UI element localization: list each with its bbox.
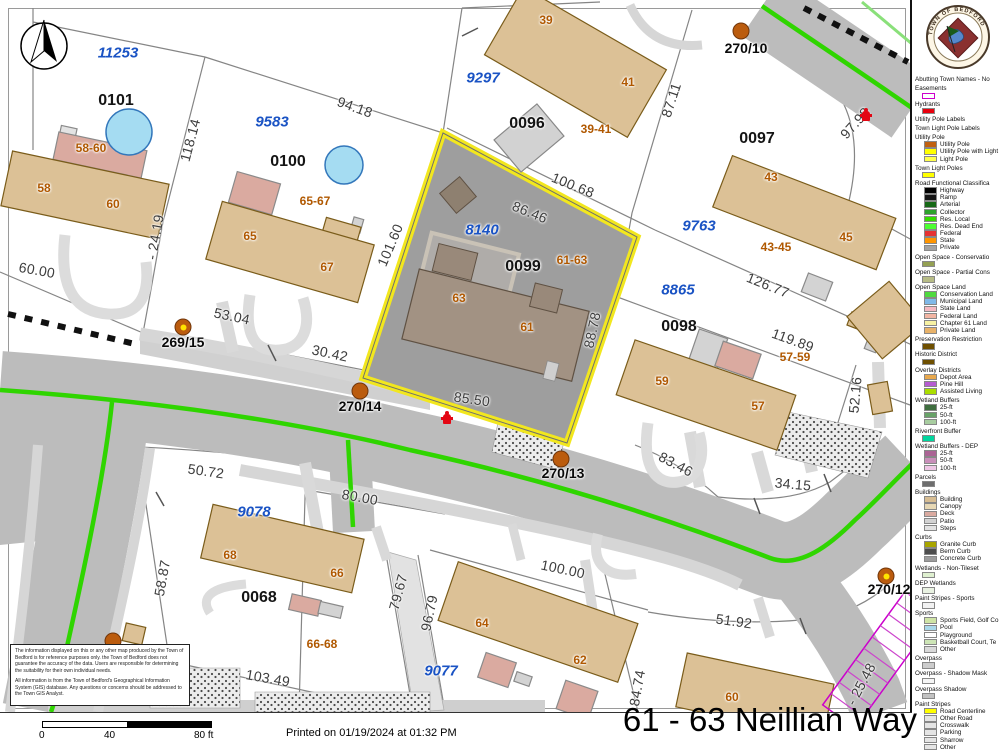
legend-item-label: 50-ft [940, 412, 953, 419]
legend-item-label: Basketball Court, Te [940, 639, 996, 646]
legend-swatch [924, 291, 937, 298]
legend-section: Overpass Shadow [915, 686, 1000, 699]
legend-swatch-row [915, 602, 1000, 608]
legend-item: Chapter 61 Land [915, 320, 1000, 327]
legend-section-heading: Easements [915, 85, 1000, 92]
disclaimer-paragraph-2: All information is from the Town of Bedf… [15, 678, 185, 698]
legend-section-heading: Overpass Shadow [915, 686, 1000, 693]
legend-item-label: Pool [940, 624, 953, 631]
legend-item-label: Depot Area [940, 374, 972, 381]
legend-swatch [924, 419, 937, 426]
legend-item: Deck [915, 510, 1000, 517]
legend-item: 100-ft [915, 465, 1000, 472]
legend-swatch-row [915, 587, 1000, 593]
legend-item-label: Playground [940, 632, 972, 639]
legend-section: Abutting Town Names - No [915, 76, 1000, 83]
legend-item-label: Building [940, 496, 962, 503]
legend-swatch [924, 209, 937, 216]
legend-item: Utility Pole with Light [915, 148, 1000, 155]
legend-item: Private [915, 244, 1000, 251]
scale-tick-40: 40 [104, 730, 115, 741]
legend-swatch [922, 587, 935, 594]
legend-item: Parking [915, 729, 1000, 736]
legend-swatch [924, 230, 937, 237]
legend-swatch [924, 548, 937, 555]
legend-section-heading: Open Space - Conservatio [915, 254, 1000, 261]
legend-swatch [924, 503, 937, 510]
legend-swatch-row [915, 261, 1000, 267]
legend-entries: Abutting Town Names - NoEasementsHydrant… [915, 76, 1000, 750]
legend-item: Highway [915, 187, 1000, 194]
legend-item-label: State [940, 237, 955, 244]
legend-item: 25-ft [915, 404, 1000, 411]
pools [106, 109, 363, 184]
legend-item: Federal [915, 230, 1000, 237]
legend-section-heading: Preservation Restriction [915, 336, 1000, 343]
printed-timestamp: Printed on 01/19/2024 at 01:32 PM [286, 727, 457, 739]
legend-swatch [924, 141, 937, 148]
legend-swatch [924, 737, 937, 744]
legend-item: Sharrow [915, 737, 1000, 744]
legend-swatch [924, 313, 937, 320]
legend-item: 50-ft [915, 457, 1000, 464]
legend-swatch-row [915, 662, 1000, 668]
legend-item-label: 50-ft [940, 457, 953, 464]
disclaimer-box: The information displayed on this or any… [10, 644, 190, 706]
legend-swatch [922, 261, 935, 268]
legend-item: Collector [915, 209, 1000, 216]
legend-swatch [924, 245, 937, 252]
legend-swatch [922, 572, 935, 579]
legend-item: Canopy [915, 503, 1000, 510]
legend-section-heading: Open Space - Partial Cons [915, 269, 1000, 276]
legend-swatch-row [915, 435, 1000, 441]
legend-item: Berm Curb [915, 548, 1000, 555]
legend-swatch [924, 223, 937, 230]
legend-section: Paint StripesRoad CenterlineOther RoadCr… [915, 701, 1000, 750]
legend-swatch [924, 617, 937, 624]
disclaimer-paragraph-1: The information displayed on this or any… [15, 648, 185, 674]
legend-section-heading: Abutting Town Names - No [915, 76, 1000, 83]
legend-section-heading: Overpass - Shadow Mask [915, 670, 1000, 677]
legend-section: Wetlands - Non-Tileset [915, 565, 1000, 578]
legend-item: Ramp [915, 194, 1000, 201]
legend-section: Easements [915, 85, 1000, 98]
legend-swatch [924, 201, 937, 208]
legend-swatch [924, 374, 937, 381]
legend-item: Other Road [915, 715, 1000, 722]
legend-swatch [924, 625, 937, 632]
legend-section-heading: Wetland Buffers [915, 397, 1000, 404]
scale-bar: 0 40 80 ft [42, 721, 212, 742]
pool-0101 [106, 109, 152, 155]
legend-swatch [924, 541, 937, 548]
legend-item-label: Ramp [940, 194, 957, 201]
legend-section: Open Space LandConservation LandMunicipa… [915, 284, 1000, 334]
legend-section: CurbsGranite CurbBerm CurbConcrete Curb [915, 534, 1000, 563]
legend-swatch [922, 359, 935, 366]
legend-section: Utility PoleUtility PoleUtility Pole wit… [915, 134, 1000, 163]
legend-item-label: Municipal Land [940, 298, 982, 305]
legend-panel: TOWN OF BEDFORD Abutting Town Names - No… [912, 0, 1000, 750]
legend-swatch [924, 388, 937, 395]
legend-section-heading: Sports [915, 610, 1000, 617]
legend-item-label: Other [940, 646, 956, 653]
legend-swatch-row [915, 108, 1000, 114]
legend-section: Wetland Buffers - DEP25-ft50-ft100-ft [915, 443, 1000, 472]
legend-swatch [922, 602, 935, 609]
legend-swatch [924, 729, 937, 736]
legend-item: Patio [915, 518, 1000, 525]
legend-swatch [924, 457, 937, 464]
legend-item: Res. Dead End [915, 223, 1000, 230]
legend-swatch [924, 715, 937, 722]
legend-swatch [924, 632, 937, 639]
legend-item-label: 100-ft [940, 419, 956, 426]
legend-section-heading: Town Light Poles [915, 165, 1000, 172]
legend-item-label: Concrete Curb [940, 555, 981, 562]
legend-item-label: Conservation Land [940, 291, 993, 298]
legend-item-label: Road Centerline [940, 708, 986, 715]
legend-item-label: Private [940, 244, 960, 251]
legend-item: Steps [915, 525, 1000, 532]
legend-swatch [922, 343, 935, 350]
legend-swatch [924, 306, 937, 313]
legend-section: Open Space - Conservatio [915, 254, 1000, 267]
legend-item-label: Utility Pole [940, 141, 970, 148]
legend-item: Depot Area [915, 374, 1000, 381]
legend-item-label: Federal [940, 230, 961, 237]
legend-item: 50-ft [915, 412, 1000, 419]
legend-item: Arterial [915, 201, 1000, 208]
legend-item-label: Light Pole [940, 156, 968, 163]
legend-item-label: Assisted Living [940, 388, 982, 395]
legend-section: Wetland Buffers25-ft50-ft100-ft [915, 397, 1000, 426]
legend-item-label: Pine Hill [940, 381, 963, 388]
legend-item-label: Steps [940, 525, 956, 532]
legend-swatch-row [915, 343, 1000, 349]
legend-swatch [922, 435, 935, 442]
legend-section: Parcels [915, 474, 1000, 487]
legend-item-label: Other [940, 744, 956, 750]
legend-item: State Land [915, 305, 1000, 312]
legend-item: Res. Local [915, 216, 1000, 223]
legend-item: State [915, 237, 1000, 244]
scale-bar-graphic [42, 721, 212, 728]
map-drawing [0, 0, 912, 712]
legend-section: Road Functional ClassificaHighwayRampArt… [915, 180, 1000, 252]
legend-item-label: Res. Local [940, 216, 970, 223]
legend-item: Pool [915, 624, 1000, 631]
legend-swatch [922, 662, 935, 669]
legend-item: Municipal Land [915, 298, 1000, 305]
legend-section: Overpass - Shadow Mask [915, 670, 1000, 683]
map-canvas: 1125395839297814097638865907890770101010… [0, 0, 912, 712]
legend-section-heading: Hydrants [915, 101, 1000, 108]
legend-swatch [924, 187, 937, 194]
legend-item-label: Chapter 61 Land [940, 320, 987, 327]
legend-item-label: State Land [940, 305, 970, 312]
legend-item-label: Sharrow [940, 737, 963, 744]
legend-swatch [924, 639, 937, 646]
legend-section: Preservation Restriction [915, 336, 1000, 349]
legend-item-label: Res. Dead End [940, 223, 983, 230]
legend-item-label: 25-ft [940, 450, 953, 457]
legend-swatch-row [915, 693, 1000, 699]
legend-item-label: Canopy [940, 503, 962, 510]
legend-item-label: Utility Pole with Light [940, 148, 998, 155]
legend-item: Granite Curb [915, 541, 1000, 548]
legend-section-heading: Utility Pole Labels [915, 116, 1000, 123]
legend-swatch [922, 481, 935, 488]
legend-item-label: Federal Land [940, 313, 977, 320]
legend-swatch [924, 646, 937, 653]
legend-swatch [922, 276, 935, 283]
legend-item: Other [915, 646, 1000, 653]
legend-swatch [924, 722, 937, 729]
legend-section: Utility Pole Labels [915, 116, 1000, 123]
legend-item: Sports Field, Golf Co [915, 617, 1000, 624]
legend-item: Federal Land [915, 313, 1000, 320]
legend-item-label: Deck [940, 510, 954, 517]
legend-swatch [924, 450, 937, 457]
legend-swatch [924, 237, 937, 244]
legend-swatch [924, 412, 937, 419]
legend-item-label: Arterial [940, 201, 960, 208]
legend-swatch [924, 404, 937, 411]
legend-swatch [922, 693, 935, 700]
legend-section: Paint Stripes - Sports [915, 595, 1000, 608]
bedford-gis-map-page: 1125395839297814097638865907890770101010… [0, 0, 1000, 750]
legend-section: Historic District [915, 351, 1000, 364]
legend-item-label: 100-ft [940, 465, 956, 472]
legend-swatch [924, 518, 937, 525]
legend-swatch-row [915, 572, 1000, 578]
page-title: 61 - 63 Neillian Way [623, 701, 917, 739]
legend-item-label: Granite Curb [940, 541, 976, 548]
legend-swatch [924, 708, 937, 715]
legend-section: Town Light Pole Labels [915, 125, 1000, 132]
legend-swatch [922, 108, 935, 115]
legend-item-label: 25-ft [940, 404, 953, 411]
legend-swatch [924, 156, 937, 163]
legend-swatch [924, 194, 937, 201]
legend-item-label: Sports Field, Golf Co [940, 617, 998, 624]
legend-section-heading: Riverfront Buffer [915, 428, 1000, 435]
legend-swatch-row [915, 678, 1000, 684]
legend-swatch [924, 298, 937, 305]
legend-item: Utility Pole [915, 141, 1000, 148]
legend-swatch [924, 511, 937, 518]
legend-section-heading: Curbs [915, 534, 1000, 541]
legend-section-heading: Parcels [915, 474, 1000, 481]
legend-section: Overpass [915, 655, 1000, 668]
legend-section-heading: Road Functional Classifica [915, 180, 1000, 187]
legend-swatch [924, 465, 937, 472]
legend-item-label: Berm Curb [940, 548, 970, 555]
legend-swatch [922, 93, 935, 100]
legend-item: Light Pole [915, 156, 1000, 163]
legend-swatch-row [915, 93, 1000, 99]
legend-item: Assisted Living [915, 388, 1000, 395]
legend-item: Basketball Court, Te [915, 639, 1000, 646]
legend-item: Building [915, 496, 1000, 503]
legend-item-label: Highway [940, 187, 964, 194]
legend-swatch [924, 327, 937, 334]
legend-section-heading: Paint Stripes - Sports [915, 595, 1000, 602]
legend-item-label: Collector [940, 209, 965, 216]
legend-item: Pine Hill [915, 381, 1000, 388]
legend-section: Riverfront Buffer [915, 428, 1000, 441]
legend-item-label: Patio [940, 518, 954, 525]
legend-section-heading: DEP Wetlands [915, 580, 1000, 587]
legend-item: Road Centerline [915, 708, 1000, 715]
legend-section-heading: Wetland Buffers - DEP [915, 443, 1000, 450]
legend-section-heading: Buildings [915, 489, 1000, 496]
legend-section-heading: Town Light Pole Labels [915, 125, 1000, 132]
legend-item: Crosswalk [915, 722, 1000, 729]
town-seal: TOWN OF BEDFORD [925, 4, 991, 72]
legend-section-heading: Wetlands - Non-Tileset [915, 565, 1000, 572]
legend-section-heading: Paint Stripes [915, 701, 1000, 708]
scale-tick-0: 0 [39, 730, 45, 741]
legend-item-label: Other Road [940, 715, 973, 722]
legend-swatch [924, 556, 937, 563]
legend-section: Open Space - Partial Cons [915, 269, 1000, 282]
legend-section: Town Light Poles [915, 165, 1000, 178]
legend-item-label: Private Land [940, 327, 975, 334]
legend-item: Conservation Land [915, 291, 1000, 298]
legend-swatch [924, 525, 937, 532]
legend-swatch-row [915, 481, 1000, 487]
legend-item-label: Parking [940, 729, 961, 736]
legend-section-heading: Utility Pole [915, 134, 1000, 141]
legend-swatch-row [915, 276, 1000, 282]
legend-swatch [924, 216, 937, 223]
legend-swatch-row [915, 172, 1000, 178]
legend-section: SportsSports Field, Golf CoPoolPlaygroun… [915, 610, 1000, 653]
scale-tick-80ft: 80 ft [194, 730, 213, 741]
legend-section: Overlay DistrictsDepot AreaPine HillAssi… [915, 367, 1000, 396]
legend-section: BuildingsBuildingCanopyDeckPatioSteps [915, 489, 1000, 532]
legend-swatch [924, 320, 937, 327]
legend-item-label: Crosswalk [940, 722, 969, 729]
legend-item: Other [915, 744, 1000, 750]
legend-swatch [924, 496, 937, 503]
legend-swatch [924, 744, 937, 750]
pool-0100 [325, 146, 363, 184]
legend-item: 100-ft [915, 419, 1000, 426]
legend-section-heading: Open Space Land [915, 284, 1000, 291]
legend-item: 25-ft [915, 450, 1000, 457]
legend-section-heading: Historic District [915, 351, 1000, 358]
legend-section: DEP Wetlands [915, 580, 1000, 593]
legend-section-heading: Overpass [915, 655, 1000, 662]
legend-item: Playground [915, 632, 1000, 639]
legend-section-heading: Overlay Districts [915, 367, 1000, 374]
legend-swatch [924, 381, 937, 388]
legend-swatch [922, 678, 935, 685]
legend-swatch [922, 172, 935, 179]
legend-section: Hydrants [915, 101, 1000, 114]
legend-item: Concrete Curb [915, 555, 1000, 562]
legend-swatch [924, 148, 937, 155]
legend-item: Private Land [915, 327, 1000, 334]
legend-swatch-row [915, 359, 1000, 365]
